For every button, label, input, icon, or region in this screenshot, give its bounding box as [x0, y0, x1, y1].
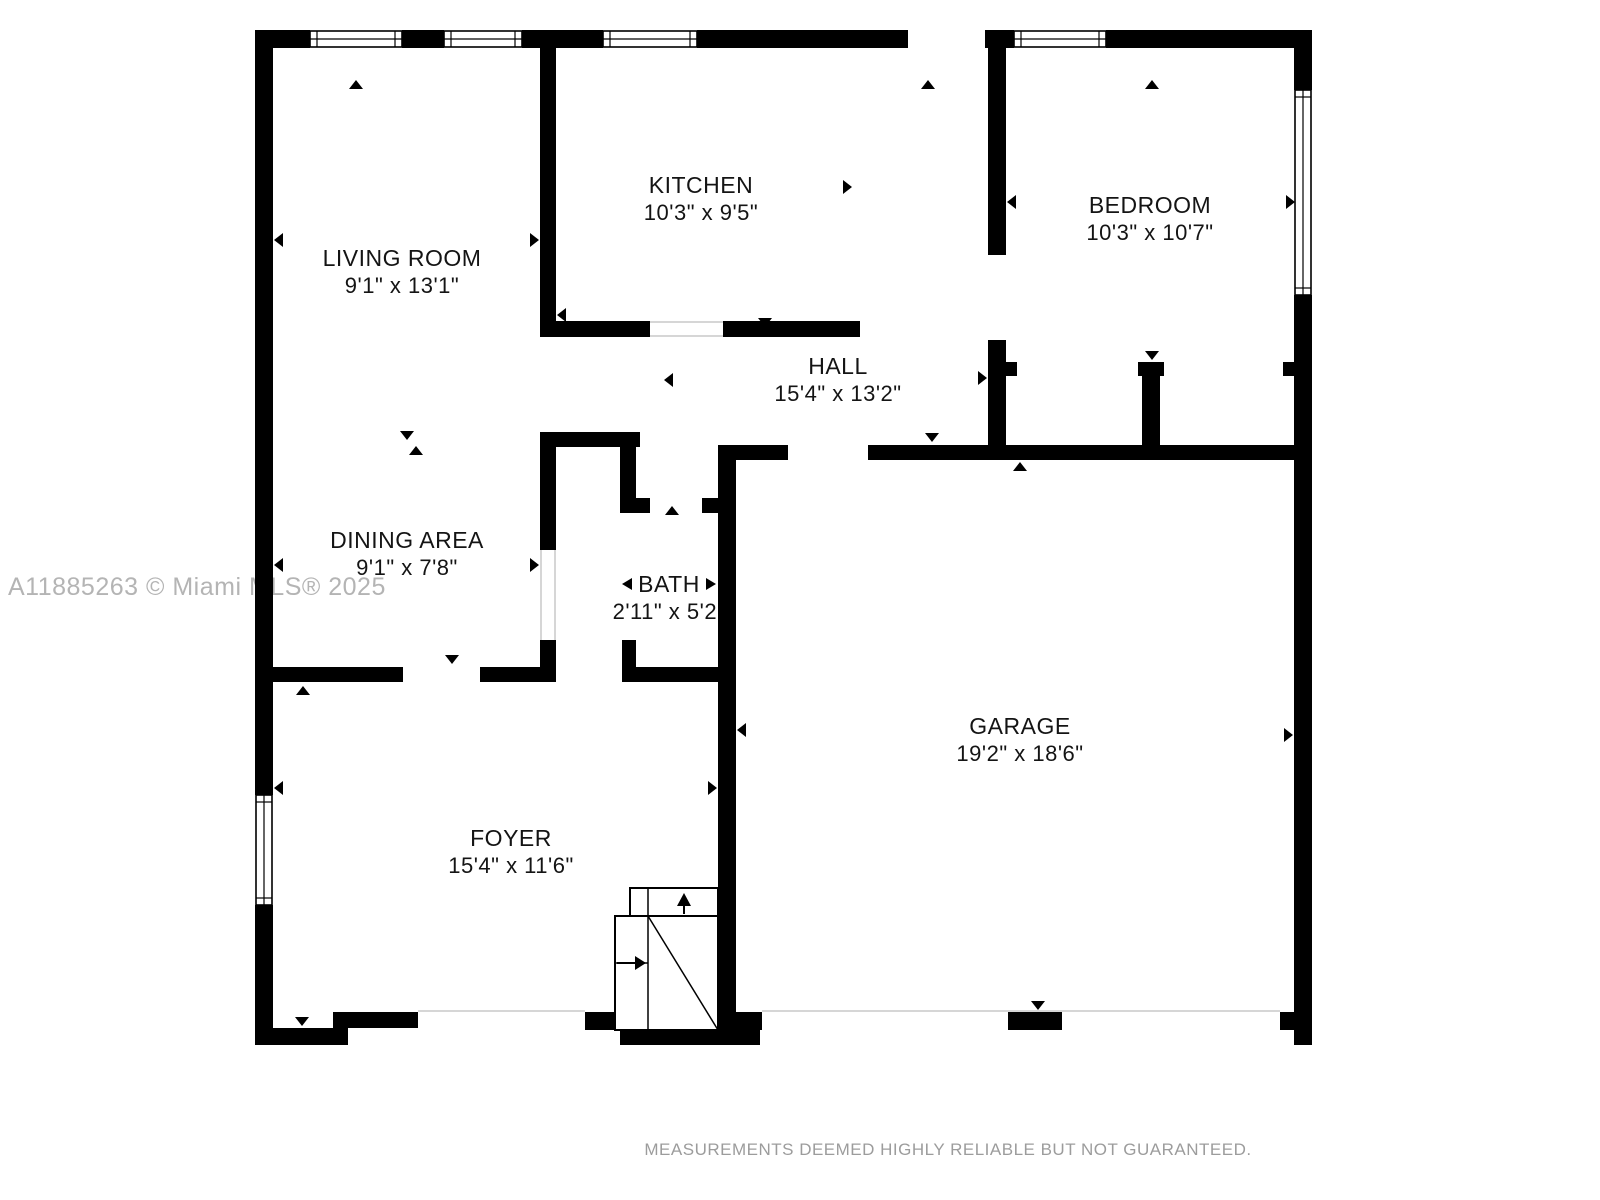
wall-segment [255, 905, 273, 1045]
wall-segment [868, 445, 1312, 460]
stairs [615, 888, 718, 1030]
window-icon [603, 31, 697, 47]
stairs-upper-landing [630, 888, 718, 916]
disclaimer-text: MEASUREMENTS DEEMED HIGHLY RELIABLE BUT … [644, 1140, 1251, 1160]
wall-segment [1138, 362, 1164, 376]
marker-up-icon [921, 80, 935, 89]
wall-segment [723, 321, 860, 337]
marker-up-icon [665, 506, 679, 515]
marker-up-icon [1013, 462, 1027, 471]
wall-segment [255, 1028, 348, 1045]
stairs-lower-flight [615, 916, 718, 1030]
marker-right-icon [978, 371, 987, 385]
wall-segment [622, 667, 718, 682]
wall-segment [620, 498, 650, 513]
window-icon [256, 795, 272, 905]
room-label-foyer: FOYER 15'4" x 11'6" [448, 824, 574, 880]
room-dimensions: 19'2" x 18'6" [956, 740, 1083, 768]
room-name: KITCHEN [644, 171, 758, 199]
wall-segment [1283, 362, 1294, 376]
wall-segment [1006, 362, 1017, 376]
wall-segment [522, 30, 603, 48]
wall-segment [988, 48, 1006, 255]
wall-segment [1142, 376, 1160, 445]
marker-up-icon [296, 686, 310, 695]
windows [256, 31, 1311, 905]
wall-segment [1280, 1012, 1294, 1030]
wall-segment [1294, 30, 1312, 90]
room-name-text: BATH [638, 571, 700, 597]
room-dimensions: 15'4" x 11'6" [448, 852, 574, 880]
marker-right-icon [530, 558, 539, 572]
room-name: FOYER [448, 824, 574, 852]
marker-left-icon [737, 723, 746, 737]
room-dimensions: 15'4" x 13'2" [774, 380, 901, 408]
wall-segment [333, 1012, 418, 1028]
wall-segment [480, 667, 556, 682]
wall-segment [540, 48, 556, 337]
wall-segment [540, 447, 556, 550]
marker-up-icon [409, 446, 423, 455]
room-dimensions: 9'1" x 7'8" [330, 554, 484, 582]
marker-down-icon [445, 655, 459, 664]
marker-down-icon [1145, 351, 1159, 360]
marker-right-icon [530, 233, 539, 247]
room-label-hall: HALL 15'4" x 13'2" [774, 352, 901, 408]
room-name: LIVING ROOM [323, 244, 482, 272]
wall-segment [1294, 295, 1312, 1045]
window-icon [444, 31, 522, 47]
room-dimensions: 10'3" x 9'5" [644, 199, 758, 227]
room-label-living-room: LIVING ROOM 9'1" x 13'1" [323, 244, 482, 300]
wall-segment [620, 447, 636, 503]
room-label-garage: GARAGE 19'2" x 18'6" [956, 712, 1083, 768]
room-dimensions: 10'3" x 10'7" [1086, 219, 1213, 247]
room-name: DINING AREA [330, 526, 484, 554]
marker-left-icon [557, 308, 566, 322]
wall-segment [255, 30, 273, 795]
room-label-dining-area: DINING AREA 9'1" x 7'8" [330, 526, 484, 582]
window-icon [310, 31, 402, 47]
room-name: GARAGE [956, 712, 1083, 740]
marker-left-icon [1007, 195, 1016, 209]
marker-down-icon [925, 433, 939, 442]
floorplan-canvas: A11885263 © Miami MLS® 2025 LIVING ROOM … [0, 0, 1600, 1200]
wall-segment [702, 498, 718, 513]
window-icon [1014, 31, 1106, 47]
wall-segment [620, 1030, 760, 1045]
wall-segment [402, 30, 444, 48]
marker-down-icon [295, 1017, 309, 1026]
floorplan-drawing [0, 0, 1600, 1200]
room-dimensions: 9'1" x 13'1" [323, 272, 482, 300]
marker-left-icon [274, 233, 283, 247]
marker-down-icon [400, 431, 414, 440]
wall-segment [985, 30, 1014, 48]
wall-segment [1106, 30, 1312, 48]
room-label-bedroom: BEDROOM 10'3" x 10'7" [1086, 191, 1213, 247]
marker-right-icon [843, 180, 852, 194]
marker-right-icon [1286, 195, 1295, 209]
wall-segment [736, 1012, 762, 1030]
marker-left-icon [274, 781, 283, 795]
marker-up-icon [349, 80, 363, 89]
marker-left-icon [274, 558, 283, 572]
wall-segment [540, 321, 650, 337]
marker-right-icon [1284, 728, 1293, 742]
marker-up-icon [1145, 80, 1159, 89]
marker-left-icon [664, 373, 673, 387]
marker-down-icon [1031, 1001, 1045, 1010]
wall-segment [273, 667, 403, 682]
marker-right-icon [708, 781, 717, 795]
room-name: BEDROOM [1086, 191, 1213, 219]
room-name: HALL [774, 352, 901, 380]
window-icon [1295, 90, 1311, 295]
wall-segment [988, 340, 1006, 445]
dimension-arrow-left-icon [622, 578, 632, 590]
wall-segment [697, 30, 908, 48]
room-label-kitchen: KITCHEN 10'3" x 9'5" [644, 171, 758, 227]
wall-segment [540, 432, 640, 447]
dimension-arrow-right-icon [706, 578, 716, 590]
garage-divider-wall [718, 445, 736, 1030]
wall-segment [1008, 1012, 1062, 1030]
